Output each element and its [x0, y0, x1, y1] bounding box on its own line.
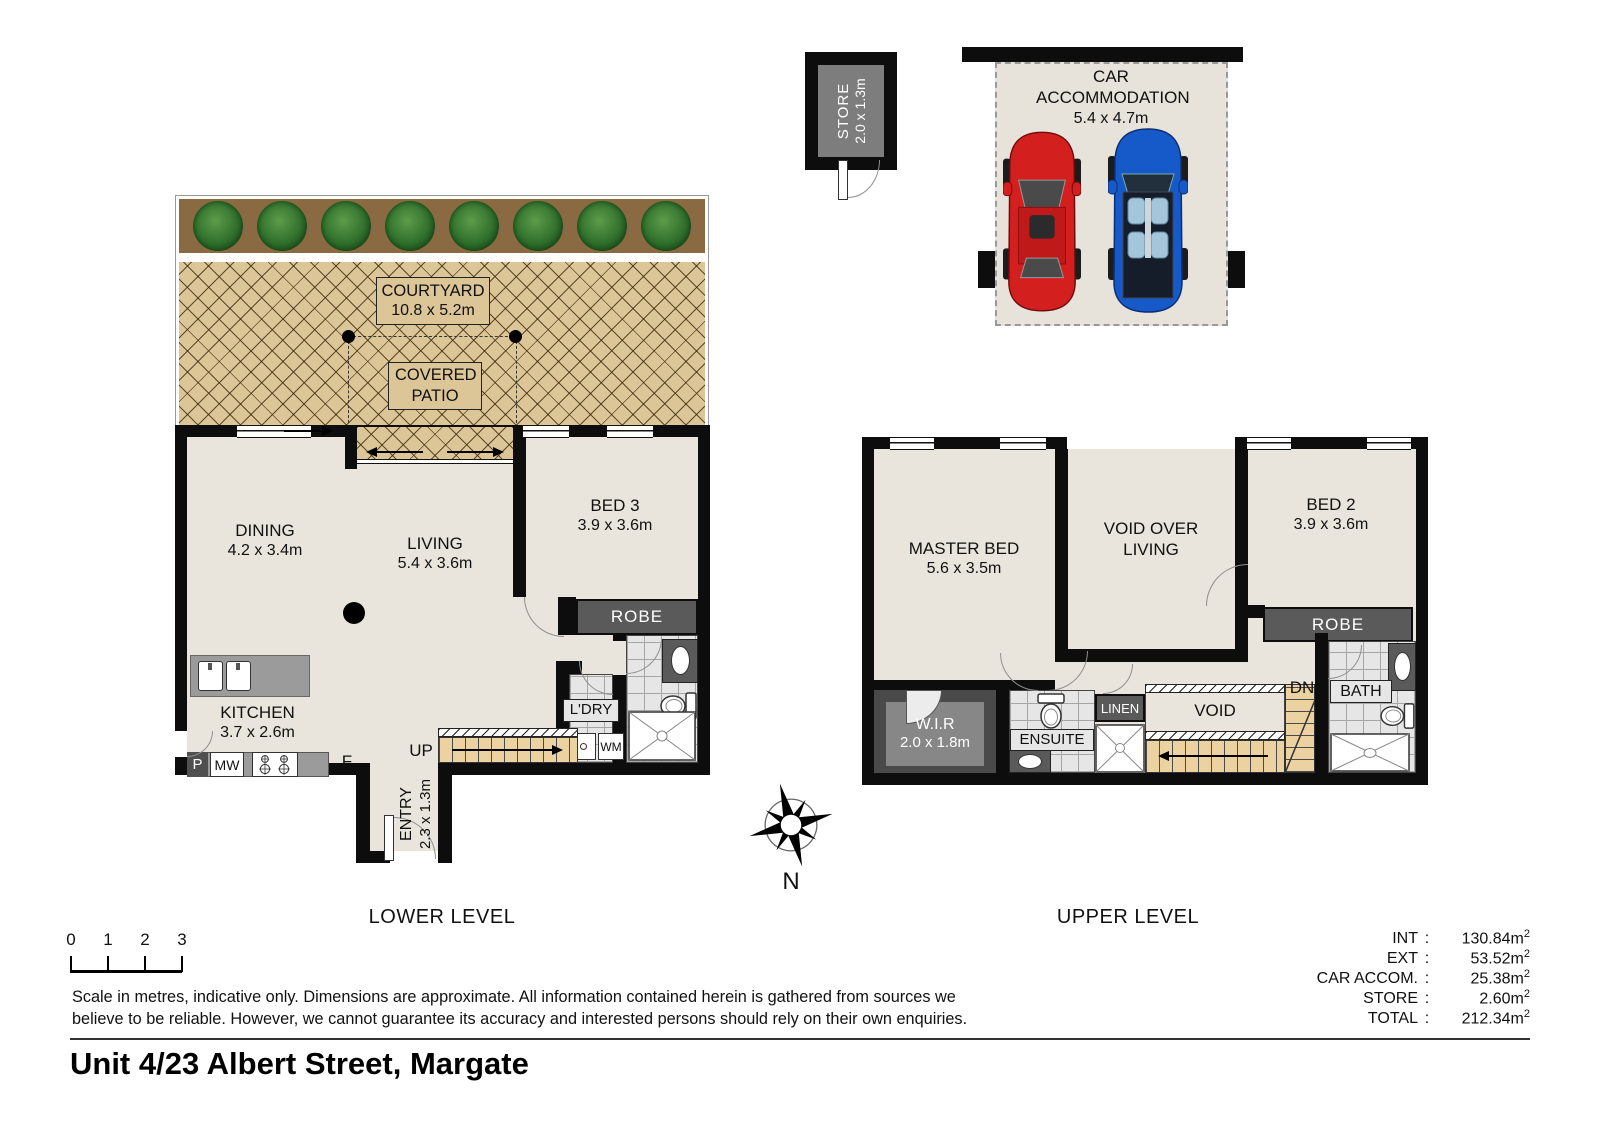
up-label: UP — [409, 741, 433, 760]
sink-tap — [236, 663, 240, 670]
area-separator: : — [1418, 970, 1436, 988]
area-label: TOTAL — [1258, 1010, 1418, 1028]
microwave-label: MW — [215, 757, 240, 773]
bed3-label: BED 3 3.9 x 3.6m — [550, 495, 680, 536]
wall-void-right — [1235, 449, 1248, 662]
area-separator: : — [1418, 990, 1436, 1008]
blue-car-icon — [1108, 124, 1188, 318]
area-unit: m — [1511, 930, 1524, 947]
room-label: ENTRY — [397, 787, 417, 841]
area-unit: m — [1511, 950, 1524, 967]
area-value: 2.60m2 — [1436, 988, 1530, 1008]
wall-stub — [345, 425, 357, 469]
shower-icon — [1095, 724, 1145, 773]
area-label: INT — [1258, 930, 1418, 948]
wall-stairs-bath — [1315, 662, 1328, 773]
north-label: N — [782, 868, 799, 895]
tree-icon — [577, 201, 627, 251]
garden-bed — [179, 199, 705, 253]
dn-marker: DN — [1286, 678, 1318, 698]
stair-hatch-strip — [438, 728, 578, 737]
tree-icon — [385, 201, 435, 251]
wall-stub — [558, 597, 576, 635]
patio-dashed-left — [348, 336, 349, 428]
linen-cupboard: LINEN — [1095, 694, 1145, 722]
vanity-sink-icon — [1394, 652, 1411, 681]
tree-icon — [321, 201, 371, 251]
void-over-living-label: VOID OVER LIVING — [1086, 518, 1216, 561]
wall-void-left — [1055, 449, 1068, 662]
area-unit: m — [1511, 1010, 1524, 1027]
tree-icon — [257, 201, 307, 251]
room-label: ROBE — [611, 607, 663, 627]
pantry-label: P — [192, 756, 202, 773]
room-label: STORE — [835, 83, 852, 139]
area-value: 212.34m2 — [1436, 1008, 1530, 1028]
tree-icon — [641, 201, 691, 251]
stair-winder-diagonal — [1285, 700, 1315, 773]
room-label: COVERED PATIO — [395, 365, 475, 406]
void-hatch-strip — [1145, 684, 1285, 693]
vanity-sink-icon — [1018, 754, 1042, 769]
room-dims: 2.0 x 1.8m — [900, 734, 970, 751]
master-bed-label: MASTER BED 5.6 x 3.5m — [899, 538, 1029, 579]
kitchen-label: KITCHEN 3.7 x 2.6m — [195, 702, 320, 743]
room-dims: 2.0 x 1.3m — [852, 78, 868, 143]
area-unit-sup: 2 — [1524, 1008, 1530, 1020]
side-door-gap — [175, 731, 187, 757]
room-label: COURTYARD — [382, 281, 485, 302]
washing-machine-label: WM — [600, 740, 621, 754]
living-label: LIVING 5.4 x 3.6m — [370, 533, 500, 574]
area-row: INT : 130.84m2 — [1254, 928, 1530, 948]
floorplan-canvas: COURTYARD 10.8 x 5.2m COVERED PATIO DINI… — [0, 0, 1600, 1131]
room-label: LINEN — [1101, 701, 1139, 716]
scale-tick-label: 0 — [64, 930, 78, 950]
room-label: ROBE — [1312, 615, 1364, 635]
area-unit-sup: 2 — [1524, 948, 1530, 960]
cooktop-icon — [252, 752, 298, 777]
entry-wall-left — [356, 763, 370, 863]
area-separator: : — [1418, 930, 1436, 948]
tree-icon — [513, 201, 563, 251]
bathroom-door-gap — [613, 641, 626, 675]
wir-label: W.I.R 2.0 x 1.8m — [880, 716, 990, 751]
area-number: 25.38 — [1471, 970, 1511, 987]
area-number: 130.84 — [1462, 930, 1511, 947]
area-table: INT : 130.84m2 EXT : 53.52m2 CAR ACCOM. … — [1254, 928, 1530, 1028]
void-label: VOID — [1155, 700, 1275, 721]
room-label: LIVING — [407, 533, 463, 554]
room-dims: 5.4 x 3.6m — [398, 554, 473, 574]
room-label: BED 2 — [1306, 494, 1355, 515]
window — [1247, 437, 1291, 450]
tree-icon — [193, 201, 243, 251]
stair-arrow — [452, 749, 556, 751]
window — [890, 437, 934, 450]
north-marker: N — [769, 868, 813, 896]
wall-wir-ensuite — [996, 690, 1009, 773]
area-label: STORE — [1258, 990, 1418, 1008]
room-label: BED 3 — [590, 495, 639, 516]
patio-slider-door — [357, 459, 513, 464]
garage-top-wall — [962, 47, 1243, 62]
entry-door-leaf — [384, 815, 394, 861]
area-value: 25.38m2 — [1436, 968, 1530, 988]
toilet-icon — [1378, 702, 1416, 730]
room-dims: 3.7 x 2.6m — [220, 723, 295, 743]
washing-machine: WM — [598, 733, 624, 760]
dining-label: DINING 4.2 x 3.4m — [200, 520, 330, 561]
room-label: VOID — [1194, 700, 1236, 721]
area-number: 53.52 — [1471, 950, 1511, 967]
wall-bath-top — [1315, 633, 1328, 666]
robe-upper: ROBE — [1263, 607, 1413, 642]
patio-post — [509, 330, 522, 343]
bath-label-box: BATH — [1330, 680, 1392, 703]
car-accommodation-label: CAR ACCOMMODATION 5.4 x 4.7m — [1036, 66, 1186, 129]
area-separator: : — [1418, 1010, 1436, 1028]
store-door-leaf — [838, 160, 848, 200]
covered-patio-label-box: COVERED PATIO — [388, 362, 482, 410]
void-hatch-strip — [1145, 731, 1285, 740]
lower-level-title: LOWER LEVEL — [292, 906, 592, 929]
compass-rose-icon — [748, 782, 834, 868]
scale-tick-label: 1 — [101, 930, 115, 950]
area-row: STORE : 2.60m2 — [1254, 988, 1530, 1008]
area-value: 130.84m2 — [1436, 928, 1530, 948]
room-dims: 2.3 x 1.3m — [417, 779, 436, 849]
store-label: STORE 2.0 x 1.3m — [830, 65, 872, 157]
patio-post — [342, 330, 355, 343]
bed2-label: BED 2 3.9 x 3.6m — [1266, 494, 1396, 535]
area-unit: m — [1511, 990, 1524, 1007]
dn-label: DN — [1290, 678, 1315, 697]
window — [1000, 437, 1046, 450]
window — [607, 425, 653, 438]
garage-side-stub — [978, 251, 995, 288]
area-unit-sup: 2 — [1524, 988, 1530, 1000]
room-dims: 4.2 x 3.4m — [228, 541, 303, 561]
room-label: W.I.R — [915, 716, 954, 734]
entry-label: ENTRY 2.3 x 1.3m — [396, 766, 436, 862]
tree-icon — [449, 201, 499, 251]
scale-tick-label: 3 — [175, 930, 189, 950]
fridge-marker: F — [336, 752, 358, 774]
stair-arrow-head — [552, 745, 563, 755]
area-number: 2.60 — [1479, 990, 1510, 1007]
area-number: 212.34 — [1462, 1010, 1511, 1027]
room-label: VOID OVER LIVING — [1091, 518, 1211, 561]
slider-arrow — [447, 451, 493, 453]
patio-dashed-right — [516, 336, 517, 428]
area-row: CAR ACCOM. : 25.38m2 — [1254, 968, 1530, 988]
red-car-icon — [1003, 126, 1081, 318]
disclaimer-line-1: Scale in metres, indicative only. Dimens… — [72, 988, 956, 1007]
column-post — [343, 602, 365, 624]
page-title: Unit 4/23 Albert Street, Margate — [70, 1046, 529, 1082]
room-label: KITCHEN — [220, 702, 295, 723]
room-dims: 3.9 x 3.6m — [1294, 515, 1369, 535]
slider-arrow-head — [493, 447, 504, 457]
toilet-icon — [1036, 692, 1066, 730]
garage-side-stub — [1228, 251, 1245, 288]
window — [523, 425, 569, 438]
wall-living-bed3 — [513, 437, 526, 597]
area-unit: m — [1511, 970, 1524, 987]
room-label: CAR ACCOMMODATION — [1036, 66, 1186, 109]
slider-arrow-head — [322, 426, 333, 436]
laundry-tub-drain — [580, 743, 587, 750]
room-dims: 5.6 x 3.5m — [927, 559, 1002, 579]
upper-level-title: UPPER LEVEL — [978, 906, 1278, 929]
room-dims: 3.9 x 3.6m — [578, 516, 653, 536]
stair-arrow — [1168, 755, 1268, 757]
ensuite-label-box: ENSUITE — [1010, 729, 1094, 751]
door-arc-icon — [848, 160, 880, 198]
laundry-label-box: L'DRY — [563, 699, 619, 722]
area-separator: : — [1418, 950, 1436, 968]
window — [1367, 437, 1411, 450]
room-label: BATH — [1340, 682, 1381, 702]
area-row: EXT : 53.52m2 — [1254, 948, 1530, 968]
room-label: DINING — [235, 520, 295, 541]
room-dims: 10.8 x 5.2m — [391, 301, 475, 321]
area-label: EXT — [1258, 950, 1418, 968]
up-marker: UP — [406, 741, 436, 761]
area-label: CAR ACCOM. — [1258, 970, 1418, 988]
area-row: TOTAL : 212.34m2 — [1254, 1008, 1530, 1028]
slider-arrow — [377, 451, 423, 453]
fridge-label: F — [342, 752, 352, 771]
shower-icon — [628, 711, 696, 761]
entry-wall-right — [438, 763, 452, 863]
shower-icon — [1330, 733, 1410, 772]
area-value: 53.52m2 — [1436, 948, 1530, 968]
vanity-sink-icon — [671, 646, 690, 675]
disclaimer-line-2: believe to be reliable. However, we cann… — [72, 1010, 967, 1029]
footer-divider — [70, 1038, 1530, 1040]
room-label: L'DRY — [570, 701, 613, 720]
area-unit-sup: 2 — [1524, 968, 1530, 980]
scale-tick-label: 2 — [138, 930, 152, 950]
patio-recess-paving — [357, 427, 513, 463]
slider-arrow-head — [366, 447, 377, 457]
room-label: MASTER BED — [909, 538, 1020, 559]
sink-tap — [208, 663, 212, 670]
microwave: MW — [210, 752, 244, 777]
scale-baseline — [70, 970, 182, 973]
slider-arrow — [284, 430, 322, 432]
courtyard-label-box: COURTYARD 10.8 x 5.2m — [376, 277, 490, 325]
room-label: ENSUITE — [1019, 731, 1084, 750]
robe-lower: ROBE — [576, 599, 698, 635]
area-unit-sup: 2 — [1524, 928, 1530, 940]
patio-dashed-top — [348, 336, 518, 337]
scale-bar: 0 1 2 3 — [60, 930, 240, 976]
